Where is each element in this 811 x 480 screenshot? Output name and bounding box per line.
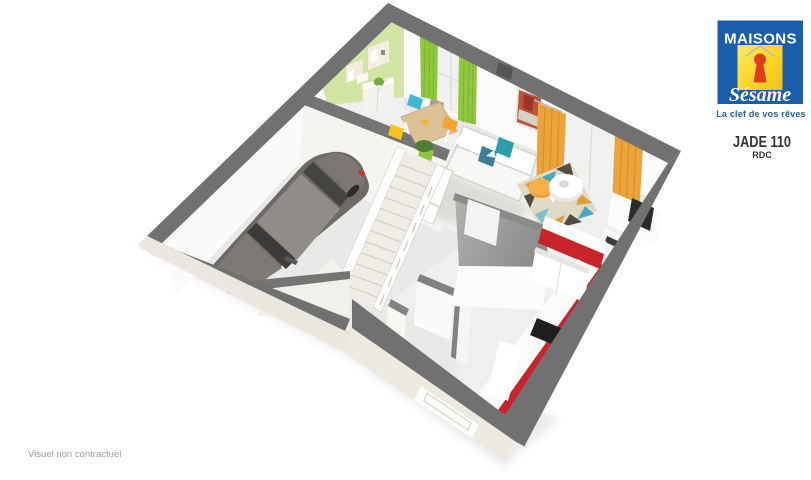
svg-text:JADE 110: JADE 110: [733, 134, 791, 151]
svg-text:La clef de vos rêves: La clef de vos rêves: [716, 109, 806, 119]
svg-text:MAISONS: MAISONS: [724, 31, 797, 48]
svg-text:RDC: RDC: [752, 150, 772, 160]
svg-text:Sésame: Sésame: [729, 84, 791, 106]
svg-text:Visuel non contractuel: Visuel non contractuel: [28, 449, 121, 460]
